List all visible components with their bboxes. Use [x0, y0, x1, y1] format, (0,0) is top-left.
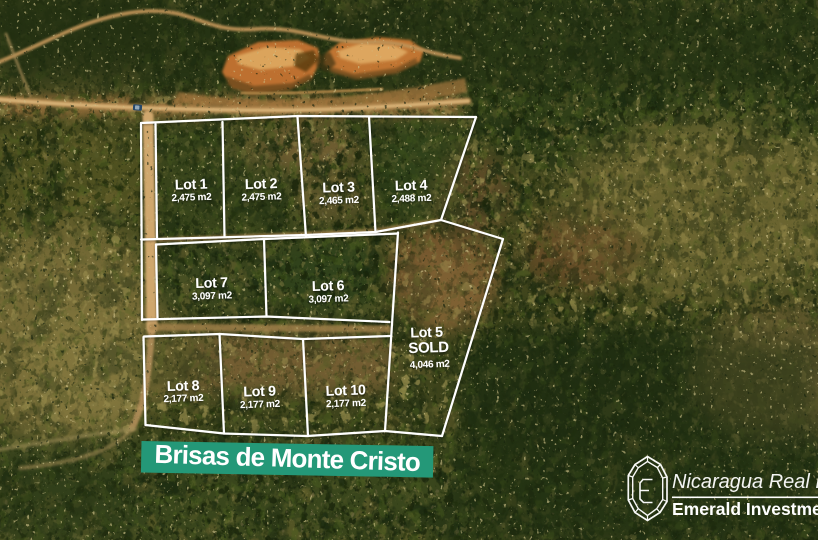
svg-text:SOLD: SOLD [408, 339, 450, 357]
svg-text:Emerald Investments: Emerald Investments [672, 499, 818, 519]
svg-text:Lot 9: Lot 9 [243, 383, 276, 400]
svg-text:Lot 1: Lot 1 [175, 176, 208, 193]
svg-text:Lot 6: Lot 6 [312, 278, 345, 295]
svg-text:2,177 m2: 2,177 m2 [240, 399, 281, 411]
svg-text:Lot 3: Lot 3 [322, 179, 355, 196]
svg-text:Lot 7: Lot 7 [195, 275, 228, 292]
svg-text:Lot 2: Lot 2 [245, 176, 278, 193]
svg-text:Lot 4: Lot 4 [395, 177, 428, 194]
svg-text:2,465 m2: 2,465 m2 [319, 195, 360, 207]
svg-text:2,177 m2: 2,177 m2 [163, 393, 204, 405]
svg-text:2,177 m2: 2,177 m2 [326, 398, 367, 410]
svg-text:4,046 m2: 4,046 m2 [410, 359, 451, 371]
svg-text:2,475 m2: 2,475 m2 [241, 191, 282, 203]
svg-text:2,488 m2: 2,488 m2 [391, 193, 432, 205]
svg-text:3,097 m2: 3,097 m2 [192, 290, 233, 302]
svg-text:3,097 m2: 3,097 m2 [308, 293, 349, 305]
svg-text:2,475 m2: 2,475 m2 [171, 192, 212, 204]
svg-text:Nicaragua Real Estate: Nicaragua Real Estate [672, 471, 818, 493]
